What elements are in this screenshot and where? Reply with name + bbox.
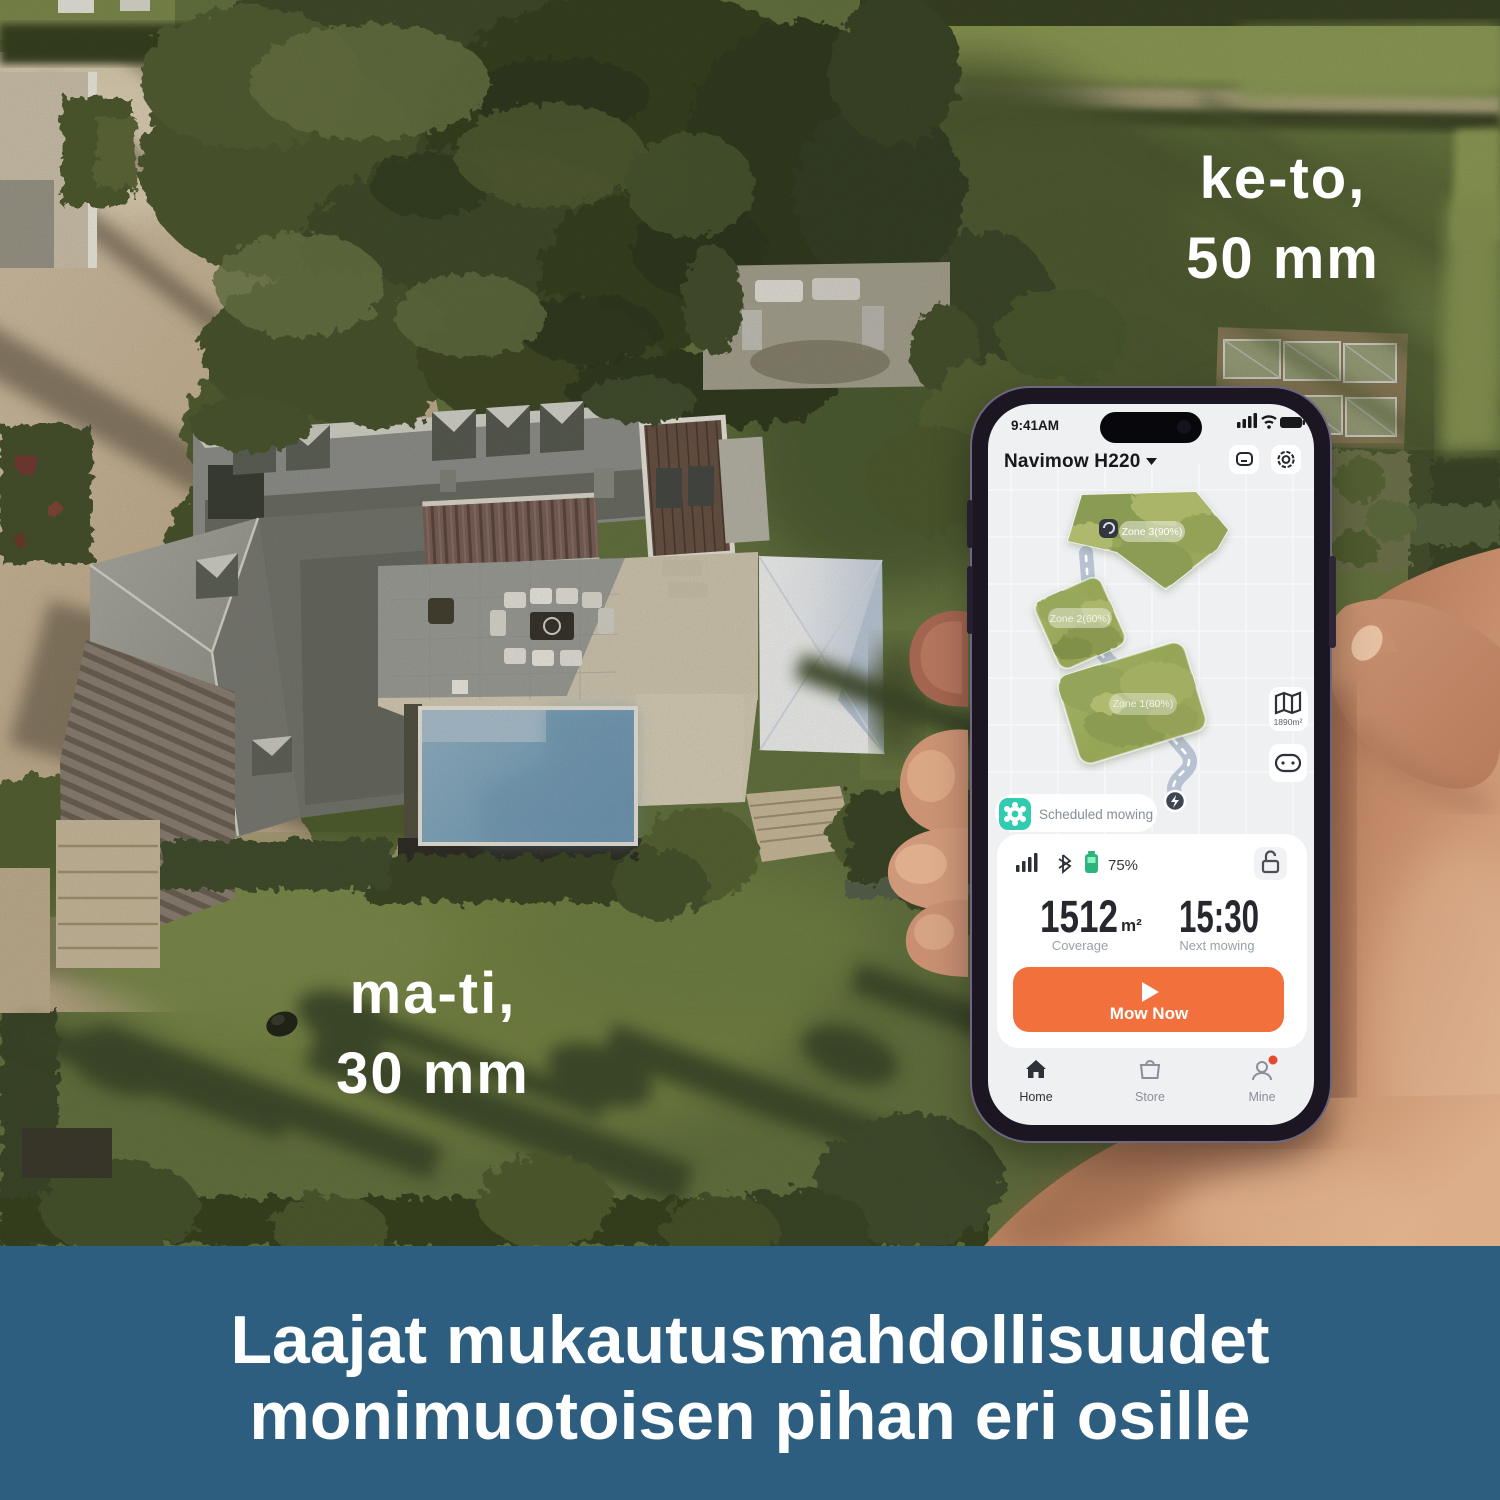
svg-text:m²: m² [1121,916,1142,935]
svg-text:9:41AM: 9:41AM [1011,418,1059,433]
svg-text:Zone 2(60%): Zone 2(60%) [1050,613,1111,625]
svg-text:1512: 1512 [1040,891,1118,942]
svg-text:Zone 3(90%): Zone 3(90%) [1122,526,1183,538]
svg-text:Next mowing: Next mowing [1179,938,1254,953]
svg-text:Mow Now: Mow Now [1110,1004,1189,1023]
svg-text:Scheduled mowing: Scheduled mowing [1039,807,1153,822]
svg-text:Mine: Mine [1248,1090,1275,1104]
svg-text:1890m²: 1890m² [1274,717,1303,727]
svg-text:Store: Store [1135,1090,1165,1104]
svg-text:15:30: 15:30 [1179,891,1259,942]
svg-text:Navimow H220: Navimow H220 [1004,451,1141,472]
svg-text:Coverage: Coverage [1052,938,1108,953]
svg-text:75%: 75% [1108,857,1138,874]
svg-text:Zone 1(80%): Zone 1(80%) [1113,698,1174,710]
svg-text:Home: Home [1019,1090,1052,1104]
